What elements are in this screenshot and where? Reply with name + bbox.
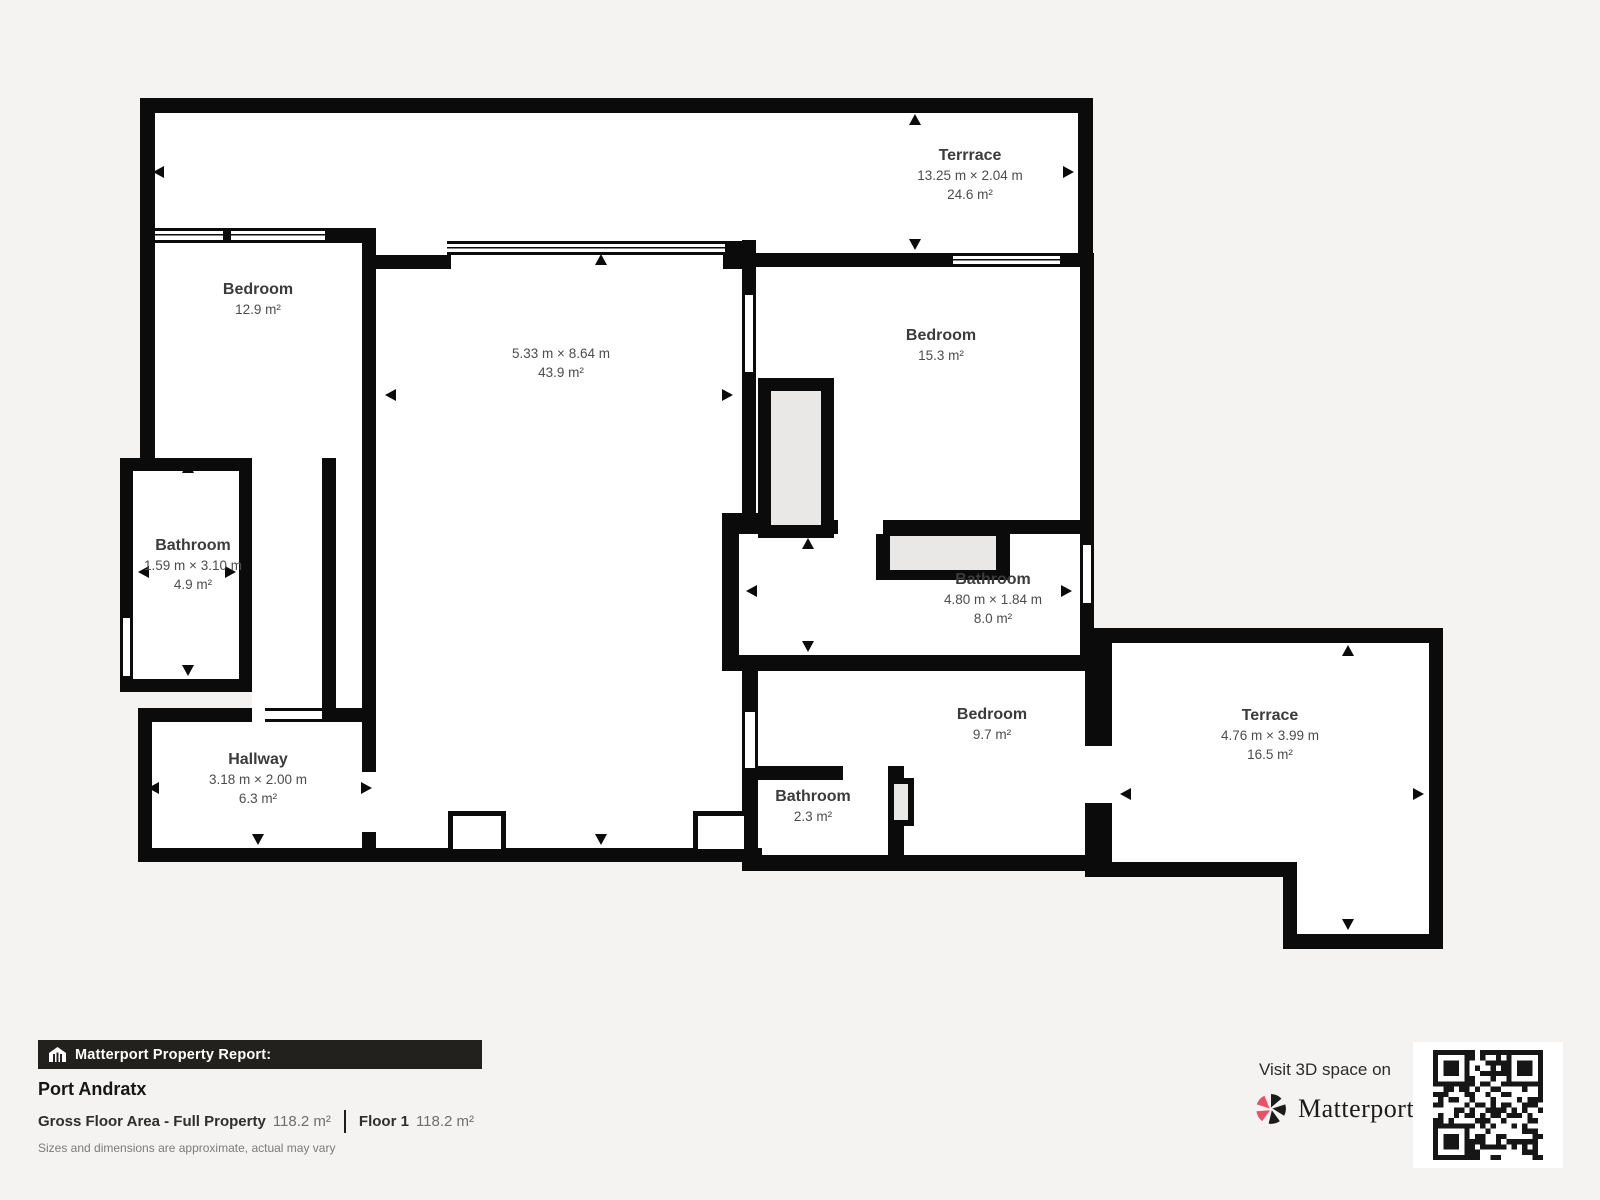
closet-shaft bbox=[771, 391, 821, 525]
bathroom3-niche bbox=[894, 784, 908, 820]
divider bbox=[344, 1110, 346, 1133]
corridor-strip bbox=[252, 458, 322, 714]
room-label-bathroom-2: Bathroom 4.80 m × 1.84 m 8.0 m² bbox=[944, 570, 1042, 628]
room-dims: 4.76 m × 3.99 m bbox=[1221, 726, 1319, 745]
matterport-logo-icon bbox=[1252, 1090, 1290, 1128]
room-name: Bedroom bbox=[223, 280, 293, 300]
room-name: Bathroom bbox=[775, 787, 851, 807]
room-name: Hallway bbox=[209, 750, 307, 770]
room-label-terrace-top: Terrrace 13.25 m × 2.04 m 24.6 m² bbox=[917, 146, 1022, 204]
room-label-bedroom-2: Bedroom 15.3 m² bbox=[906, 326, 976, 365]
room-name: Bedroom bbox=[957, 705, 1027, 725]
room-bedroom-3 bbox=[749, 662, 1097, 862]
room-label-hallway: Hallway 3.18 m × 2.00 m 6.3 m² bbox=[209, 750, 307, 808]
qr-code bbox=[1433, 1050, 1543, 1160]
bedroom1-window-1 bbox=[155, 228, 223, 243]
corridor-strip-2 bbox=[336, 458, 362, 714]
hallway-window bbox=[252, 708, 322, 722]
gfa-value: 118.2 m² bbox=[273, 1113, 331, 1130]
room-area: 12.9 m² bbox=[223, 300, 293, 319]
room-area: 24.6 m² bbox=[917, 185, 1022, 204]
room-area: 2.3 m² bbox=[775, 807, 851, 826]
report-header-bar: Matterport Property Report: bbox=[38, 1040, 482, 1069]
room-name: Terrrace bbox=[917, 146, 1022, 166]
room-area: 9.7 m² bbox=[957, 725, 1027, 744]
room-label-living-room: 5.33 m × 8.64 m 43.9 m² bbox=[512, 344, 610, 382]
floor-label: Floor 1 bbox=[359, 1113, 409, 1130]
floorplan-canvas bbox=[0, 0, 1600, 1010]
room-label-bedroom-3: Bedroom 9.7 m² bbox=[957, 705, 1027, 744]
terrace-door-opening bbox=[1085, 746, 1112, 803]
property-name: Port Andratx bbox=[38, 1079, 146, 1100]
room-terrace-2 bbox=[1091, 634, 1436, 942]
hallway-living-opening bbox=[362, 772, 376, 832]
floor-area-row: Gross Floor Area - Full Property 118.2 m… bbox=[38, 1110, 474, 1133]
room-area: 15.3 m² bbox=[906, 346, 976, 365]
room-area: 43.9 m² bbox=[512, 363, 610, 382]
room-dims: 1.59 m × 3.10 m bbox=[144, 556, 242, 575]
room-label-terrace-2: Terrace 4.76 m × 3.99 m 16.5 m² bbox=[1221, 706, 1319, 764]
room-name: Bathroom bbox=[144, 536, 242, 556]
living-right-window bbox=[742, 295, 756, 372]
room-area: 8.0 m² bbox=[944, 609, 1042, 628]
matterport-floorplan-report: { "plan": { "rooms": [ {"id":"terrace-to… bbox=[0, 0, 1600, 1200]
room-label-bedroom-1: Bedroom 12.9 m² bbox=[223, 280, 293, 319]
gfa-label: Gross Floor Area - Full Property bbox=[38, 1113, 266, 1130]
room-name: Bedroom bbox=[906, 326, 976, 346]
room-dims: 5.33 m × 8.64 m bbox=[512, 344, 610, 363]
bedroom3-window bbox=[742, 712, 758, 768]
bedroom1-window-2 bbox=[231, 228, 325, 243]
room-name: Terrace bbox=[1221, 706, 1319, 726]
bathroom1-window bbox=[120, 618, 133, 676]
matterport-wordmark: Matterport· bbox=[1298, 1094, 1420, 1124]
room-bedroom-1 bbox=[148, 236, 369, 466]
visit-3d-text: Visit 3D space on bbox=[1255, 1060, 1395, 1080]
shower-niche bbox=[890, 536, 996, 570]
matterport-brand: Matterport· bbox=[1252, 1090, 1420, 1128]
floor-value: 118.2 m² bbox=[416, 1113, 474, 1130]
qr-tile bbox=[1413, 1042, 1563, 1168]
bedroom2-window bbox=[953, 253, 1060, 267]
room-area: 16.5 m² bbox=[1221, 745, 1319, 764]
disclaimer-text: Sizes and dimensions are approximate, ac… bbox=[38, 1141, 335, 1155]
room-dims: 13.25 m × 2.04 m bbox=[917, 166, 1022, 185]
room-label-bathroom-3: Bathroom 2.3 m² bbox=[775, 787, 851, 826]
room-area: 6.3 m² bbox=[209, 789, 307, 808]
bathroom2-window bbox=[1080, 545, 1094, 603]
room-dims: 3.18 m × 2.00 m bbox=[209, 770, 307, 789]
room-area: 4.9 m² bbox=[144, 575, 242, 594]
room-name: Bathroom bbox=[944, 570, 1042, 590]
matterport-house-icon bbox=[49, 1047, 66, 1062]
living-window bbox=[447, 241, 725, 255]
room-dims: 4.80 m × 1.84 m bbox=[944, 590, 1042, 609]
report-bar-label: Matterport Property Report: bbox=[75, 1047, 271, 1063]
room-label-bathroom-1: Bathroom 1.59 m × 3.10 m 4.9 m² bbox=[144, 536, 242, 594]
